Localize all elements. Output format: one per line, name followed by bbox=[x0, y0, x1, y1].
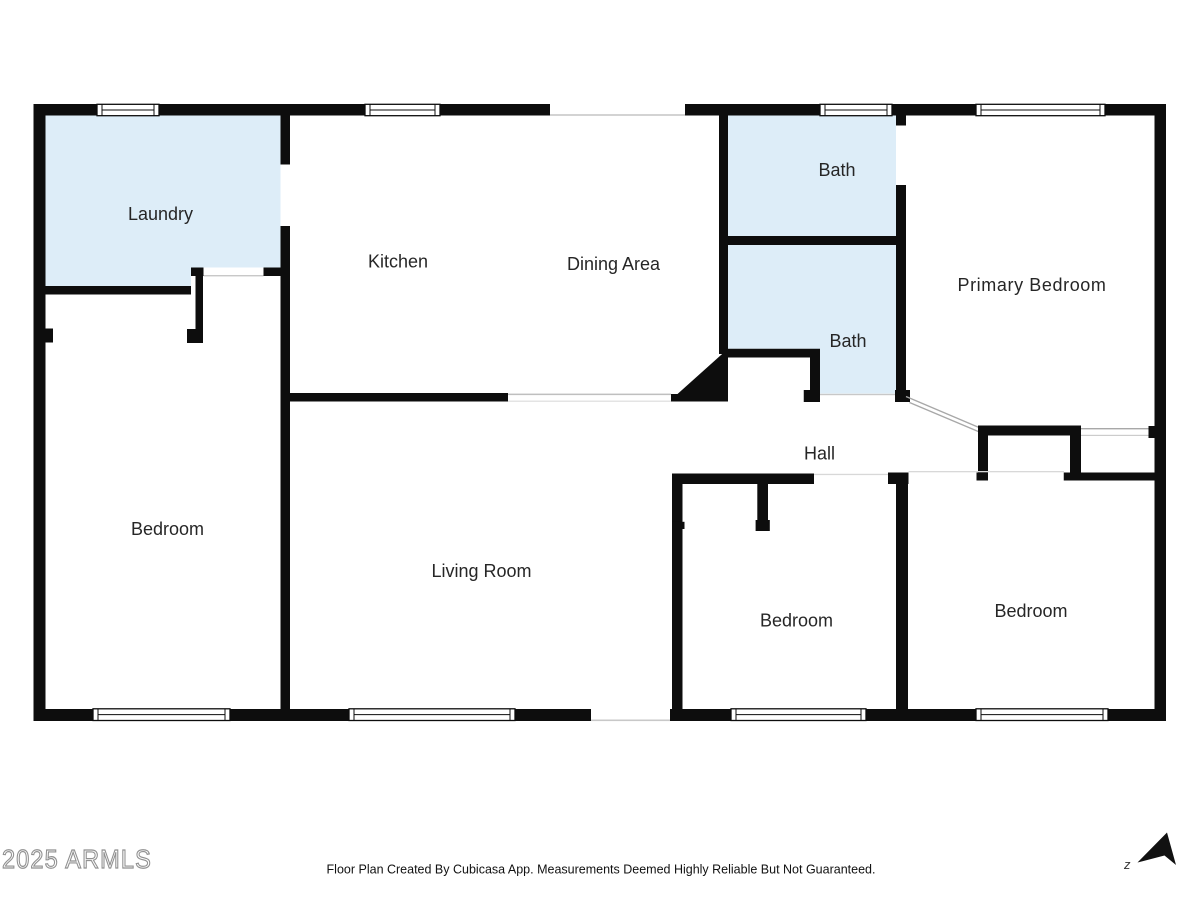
svg-text:Dining Area: Dining Area bbox=[567, 254, 661, 274]
svg-text:Hall: Hall bbox=[804, 444, 835, 464]
svg-text:Bath: Bath bbox=[829, 331, 866, 351]
svg-text:2025 ARMLS: 2025 ARMLS bbox=[2, 846, 152, 874]
svg-text:Bath: Bath bbox=[818, 160, 855, 180]
svg-text:z: z bbox=[1123, 857, 1131, 872]
svg-text:Bedroom: Bedroom bbox=[994, 601, 1067, 621]
svg-text:Bedroom: Bedroom bbox=[760, 611, 833, 631]
svg-text:Bedroom: Bedroom bbox=[131, 519, 204, 539]
svg-text:Primary Bedroom: Primary Bedroom bbox=[957, 275, 1106, 295]
svg-text:Living Room: Living Room bbox=[431, 561, 531, 581]
svg-text:Laundry: Laundry bbox=[128, 204, 193, 224]
svg-text:Floor Plan Created By Cubicasa: Floor Plan Created By Cubicasa App. Meas… bbox=[327, 863, 876, 877]
svg-text:Kitchen: Kitchen bbox=[368, 252, 428, 272]
